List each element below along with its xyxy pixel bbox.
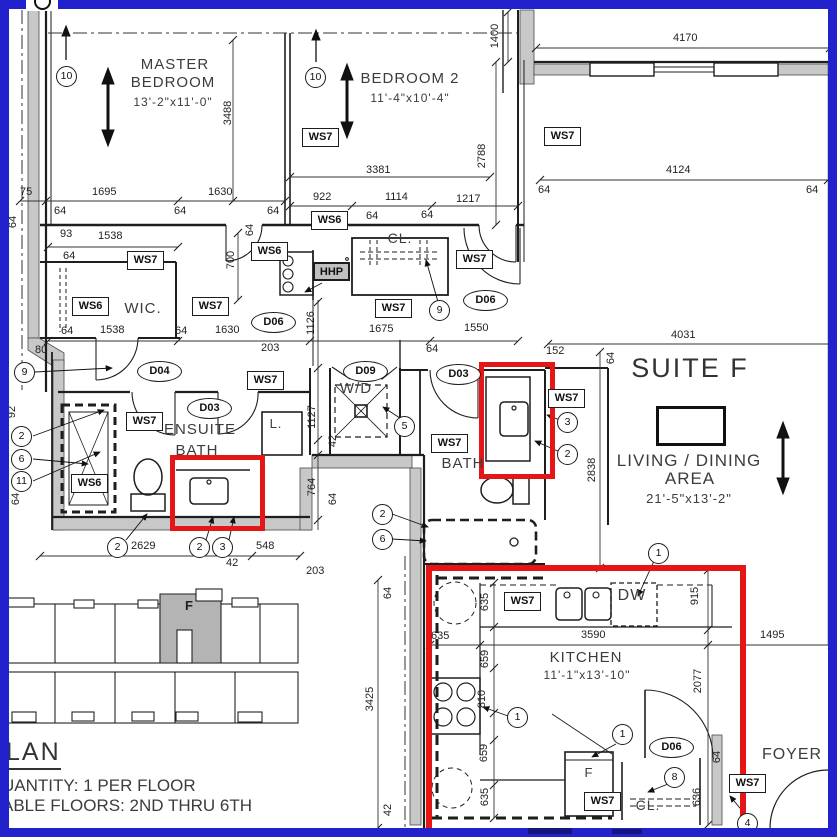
dim-label: 64 — [54, 205, 66, 217]
dim-label: 635 — [431, 630, 449, 642]
dim-label-vertical: 2838 — [586, 458, 598, 482]
keynote-tag: 3 — [557, 412, 578, 433]
keyplan-unit-label: F — [185, 598, 193, 613]
keynote-tag: 10 — [56, 66, 77, 87]
wall-tag: WS7 — [504, 592, 541, 611]
dim-label: 548 — [256, 540, 274, 552]
dim-label-vertical: 810 — [476, 690, 488, 708]
room-label-master-2: BEDROOM — [131, 74, 216, 91]
dim-label-vertical: 915 — [689, 587, 701, 605]
dim-label: 80 — [35, 344, 47, 356]
dim-label: 42 — [226, 557, 238, 569]
keynote-tag: 2 — [557, 444, 578, 465]
wall-tag-hhp: HHP — [313, 262, 350, 281]
keynote-tag: 2 — [107, 537, 128, 558]
door-tag: D06 — [649, 737, 694, 758]
room-size-kitchen: 11'-1"x13'-10" — [544, 668, 631, 682]
linen-label: L. — [270, 416, 283, 431]
room-label-foyer: FOYER — [762, 746, 822, 764]
dim-label: 93 — [60, 228, 72, 240]
wall-tag: WS7 — [375, 299, 412, 318]
dim-label: 1695 — [92, 186, 116, 198]
dim-label: 4170 — [673, 32, 697, 44]
wall-tag: WS7 — [431, 434, 468, 453]
room-size-living: 21'-5"x13'-2" — [646, 491, 732, 506]
dim-label-vertical: 1400 — [489, 24, 501, 48]
dim-label-vertical: 2788 — [476, 144, 488, 168]
dim-label-vertical: 42 — [327, 435, 339, 447]
dim-label: 1630 — [208, 186, 232, 198]
room-label-living-1: LIVING / DINING — [617, 451, 761, 471]
room-label-ensuite-2: BATH — [176, 442, 219, 459]
dim-label: 64 — [63, 250, 75, 262]
wall-tag: WS6 — [311, 211, 348, 230]
dim-label-vertical: 1126 — [305, 311, 317, 335]
keynote-tag: 2 — [189, 537, 210, 558]
dim-label-vertical: 659 — [479, 650, 491, 668]
dim-label: 203 — [306, 565, 324, 577]
dim-label: 152 — [546, 345, 564, 357]
dim-label: 64 — [806, 184, 818, 196]
room-label-kitchen: KITCHEN — [550, 649, 623, 666]
dim-label-vertical: 3425 — [364, 687, 376, 711]
laundry-label: W/D — [340, 380, 372, 397]
room-size-master: 13'-2"x11'-0" — [133, 95, 212, 109]
highlight-box-ensuite-vanity — [170, 455, 265, 531]
room-label-wic: WIC. — [124, 300, 161, 317]
door-tag: D03 — [187, 398, 232, 419]
dim-label: 3590 — [581, 629, 605, 641]
dim-label: 1538 — [98, 230, 122, 242]
dim-label-vertical: 635 — [479, 788, 491, 806]
dim-label-vertical: 700 — [225, 251, 237, 269]
dim-label-vertical: 636 — [691, 788, 703, 806]
dim-label: 64 — [426, 343, 438, 355]
dim-label: 4124 — [666, 164, 690, 176]
suite-title: SUITE F — [631, 353, 749, 384]
border-mark — [612, 829, 642, 834]
keynote-tag: 5 — [394, 416, 415, 437]
note-floors: ABLE FLOORS: 2ND THRU 6TH — [2, 796, 252, 816]
wall-tag: WS7 — [584, 792, 621, 811]
keynote-tag: 11 — [11, 471, 32, 492]
dim-label: 64 — [267, 205, 279, 217]
dim-label: 64 — [175, 325, 187, 337]
keynote-tag: 1 — [612, 724, 633, 745]
wall-tag: WS7 — [126, 412, 163, 431]
dim-label-vertical: 2077 — [692, 669, 704, 693]
dim-label-vertical: 64 — [10, 493, 22, 505]
keynote-tag: 9 — [14, 362, 35, 383]
dim-label-vertical: 764 — [306, 478, 318, 496]
wall-tag: WS7 — [729, 774, 766, 793]
room-size-bedroom2: 11'-4"x10'-4" — [370, 91, 449, 105]
wall-tag: WS7 — [127, 251, 164, 270]
dim-label: 3381 — [366, 164, 390, 176]
dim-label-vertical: 3488 — [222, 101, 234, 125]
wall-tag: WS6 — [71, 474, 108, 493]
dim-label: 2629 — [131, 540, 155, 552]
dim-label: 75 — [20, 186, 32, 198]
wall-tag: WS6 — [72, 297, 109, 316]
door-tag: D06 — [251, 312, 296, 333]
dishwasher-label: DW — [618, 587, 647, 605]
dim-label: 64 — [366, 210, 378, 222]
key-plan — [0, 589, 298, 723]
dim-label: 1114 — [385, 191, 408, 203]
dim-label-vertical: 64 — [605, 352, 617, 364]
fridge-label: F — [585, 765, 594, 780]
dim-label: 922 — [313, 191, 331, 203]
wall-tag: WS7 — [192, 297, 229, 316]
highlight-box-bath-vanity — [479, 362, 555, 479]
dim-label-vertical: 659 — [478, 744, 490, 762]
dim-label: 64 — [174, 205, 186, 217]
wall-tag: WS7 — [548, 389, 585, 408]
keynote-tag: 3 — [212, 537, 233, 558]
dim-label: 1495 — [760, 629, 784, 641]
dim-label-vertical: 64 — [244, 224, 256, 236]
keynote-tag: 1 — [507, 707, 528, 728]
note-quantity: UANTITY: 1 PER FLOOR — [2, 776, 196, 796]
wall-tag: WS7 — [544, 127, 581, 146]
closet-label-hall: CL. — [388, 230, 413, 246]
dim-label-vertical: 92 — [6, 406, 18, 418]
door-tag: D09 — [343, 361, 388, 382]
dim-label: 64 — [421, 209, 433, 221]
room-label-living-2: AREA — [665, 469, 715, 489]
dim-label: 1630 — [215, 324, 239, 336]
keynote-tag: 10 — [305, 67, 326, 88]
room-label-bedroom2: BEDROOM 2 — [360, 70, 459, 87]
keynote-tag: 4 — [737, 813, 758, 834]
wall-tag: WS7 — [247, 371, 284, 390]
dim-label: 203 — [261, 342, 279, 354]
keynote-tag: 2 — [11, 426, 32, 447]
dim-label: 64 — [538, 184, 550, 196]
plan-title: LAN — [6, 738, 61, 770]
room-label-ensuite-1: ENSUITE — [164, 421, 236, 438]
keynote-tag: 2 — [372, 504, 393, 525]
door-tag: D04 — [137, 361, 182, 382]
dim-label: 1217 — [456, 193, 480, 205]
dim-label-vertical: 64 — [711, 751, 723, 763]
keynote-tag: 9 — [429, 300, 450, 321]
dim-label-vertical: 635 — [479, 593, 491, 611]
dim-label-vertical: 42 — [382, 804, 394, 816]
keynote-tag: 6 — [372, 529, 393, 550]
wall-tag: WS7 — [302, 128, 339, 147]
suite-title-box — [656, 406, 726, 446]
door-tag: D06 — [463, 290, 508, 311]
border-mark — [528, 828, 572, 834]
dim-label-vertical: 1127 — [306, 405, 318, 429]
dim-label: 1538 — [100, 324, 124, 336]
closet-label-kitchen: CL. — [636, 797, 661, 813]
room-label-bath: BATH — [442, 455, 485, 472]
keynote-tag: 6 — [11, 449, 32, 470]
keynote-tag: 8 — [664, 767, 685, 788]
wall-tag: WS7 — [456, 250, 493, 269]
dim-label: 1550 — [464, 322, 488, 334]
dim-label: 64 — [61, 325, 73, 337]
door-tag: D03 — [436, 364, 481, 385]
room-label-master-1: MASTER — [141, 56, 210, 73]
wall-tag: WS6 — [251, 242, 288, 261]
dim-label: 1675 — [369, 323, 393, 335]
dim-label-vertical: 64 — [327, 493, 339, 505]
dim-label-vertical: 64 — [382, 587, 394, 599]
dim-label-vertical: 64 — [7, 216, 19, 228]
floor-plan: { "colors": {"border":"#2222cc","highlig… — [0, 0, 837, 837]
dim-label: 4031 — [671, 329, 695, 341]
keynote-tag: 1 — [648, 543, 669, 564]
border-notch — [26, 0, 58, 11]
